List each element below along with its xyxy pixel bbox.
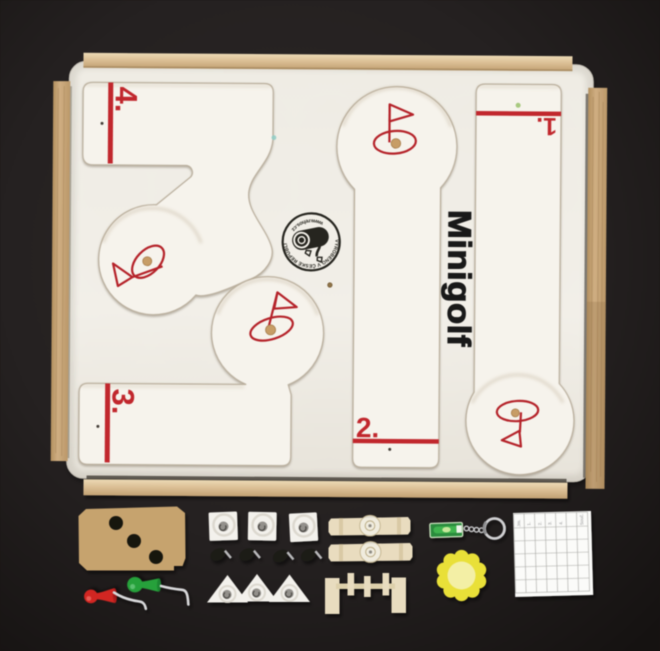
- svg-text:Souč.: Souč.: [579, 514, 584, 526]
- svg-text:Jm.: Jm.: [516, 520, 521, 527]
- svg-text:2.: 2.: [356, 412, 380, 443]
- svg-text:1.: 1.: [526, 522, 531, 526]
- svg-text:3.: 3.: [105, 388, 140, 414]
- svg-text:4.: 4.: [558, 521, 563, 525]
- svg-text:2.: 2.: [537, 521, 542, 525]
- svg-text:1.: 1.: [536, 112, 557, 140]
- svg-text:Minigolf: Minigolf: [441, 210, 478, 347]
- svg-text:3.: 3.: [547, 521, 552, 525]
- svg-text:4.: 4.: [109, 86, 144, 112]
